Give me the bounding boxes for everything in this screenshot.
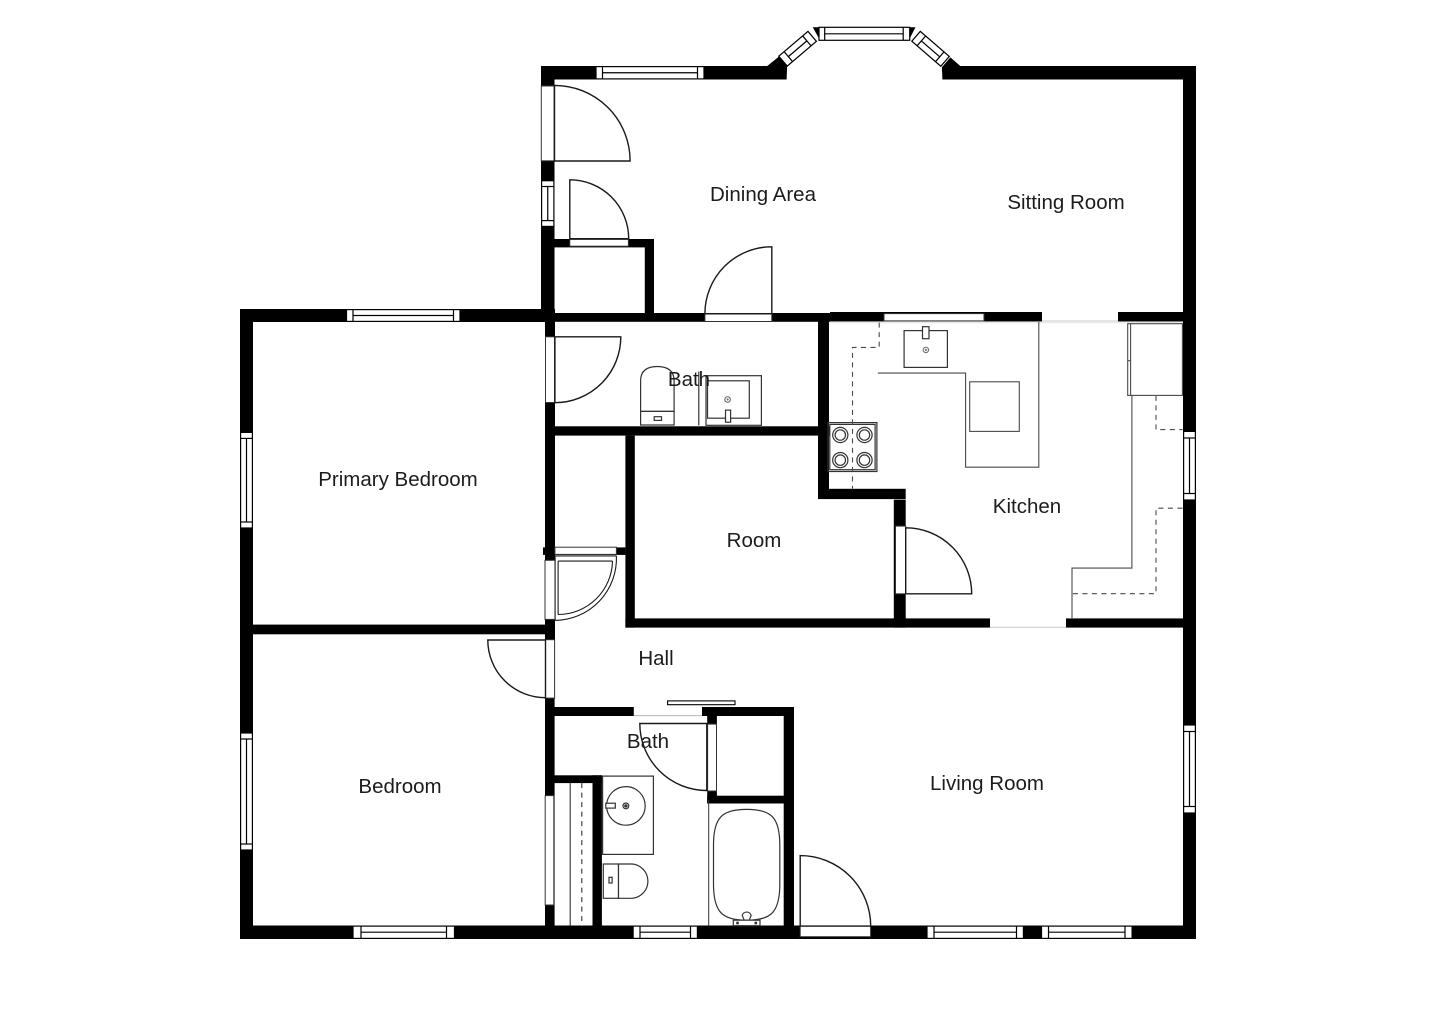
- svg-text:Sitting Room: Sitting Room: [1007, 191, 1124, 214]
- svg-text:Primary Bedroom: Primary Bedroom: [318, 468, 478, 491]
- svg-text:Bedroom: Bedroom: [358, 775, 441, 798]
- svg-text:Living Room: Living Room: [930, 772, 1044, 795]
- svg-text:Room: Room: [727, 529, 782, 552]
- svg-text:Bath: Bath: [668, 368, 710, 391]
- svg-text:Dining Area: Dining Area: [710, 183, 817, 206]
- svg-text:Bath: Bath: [627, 730, 669, 753]
- svg-text:Hall: Hall: [638, 647, 673, 670]
- svg-text:Kitchen: Kitchen: [993, 495, 1061, 518]
